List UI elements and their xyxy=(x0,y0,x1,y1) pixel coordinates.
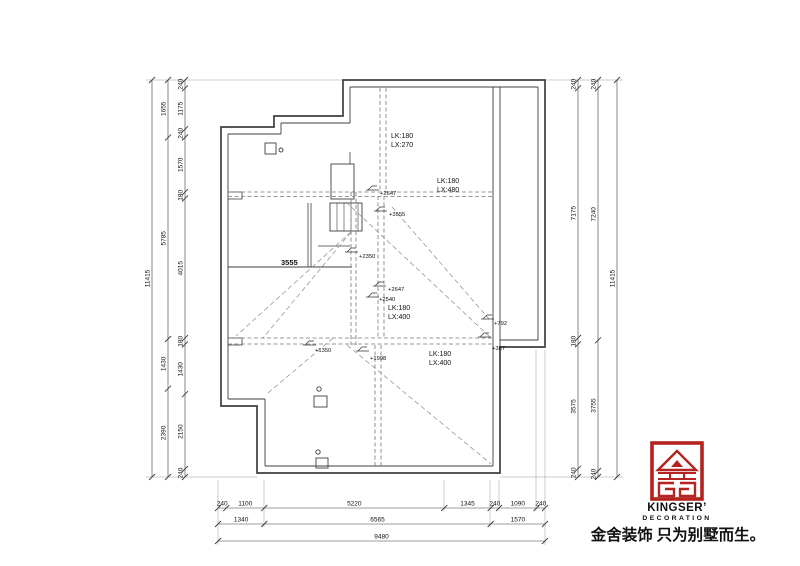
dim-label: 7175 xyxy=(571,206,578,221)
dim-label: 1340 xyxy=(234,517,249,524)
dim-label: 1430 xyxy=(161,356,168,371)
dim-label: 1655 xyxy=(161,101,168,116)
elevation-value-label: +2647 xyxy=(380,191,396,197)
dim-label: 1175 xyxy=(178,101,185,115)
dim-label: 11415 xyxy=(145,269,152,287)
beam-size-label: LX:480 xyxy=(437,187,459,194)
dim-label: 240 xyxy=(571,467,578,478)
dim-label: 240 xyxy=(571,78,578,89)
floorplan-svg: 金舍装饰水印 xyxy=(0,0,800,566)
elevation-value-label: +1350 xyxy=(315,348,331,354)
dim-label: 4015 xyxy=(178,261,185,276)
beam-size-label: LX:400 xyxy=(429,360,451,367)
dim-label: 240 xyxy=(591,78,598,89)
dim-label: 11415 xyxy=(610,269,617,287)
elevation-value-label: +2647 xyxy=(388,287,404,293)
dim-label: 240 xyxy=(217,501,228,508)
beam-size-label: LK:180 xyxy=(391,133,413,140)
dim-label: 240 xyxy=(178,128,185,139)
elevation-value-label: +792 xyxy=(494,321,507,327)
elevation-value-label: +3555 xyxy=(389,212,405,218)
outer-wall-outline xyxy=(221,80,545,473)
logo-sub-text: DECORATION xyxy=(642,515,711,522)
dim-label: 2150 xyxy=(178,424,185,439)
logo-tagline: 金舍装饰 只为别墅而生。 xyxy=(590,525,765,544)
elevation-value-label: +387 xyxy=(492,346,505,352)
dim-label: 3575 xyxy=(571,399,578,414)
dim-label: 7240 xyxy=(591,207,598,222)
dim-label: 240 xyxy=(591,468,598,479)
dim-label: 1345 xyxy=(460,501,475,508)
dim-label: 1570 xyxy=(511,517,526,524)
beam-size-label: LK:180 xyxy=(437,178,459,185)
elevation-value-label: +1998 xyxy=(370,356,386,362)
dim-label: 180 xyxy=(178,189,185,200)
dim-label: 180 xyxy=(571,335,578,346)
elevation-value-label: +2540 xyxy=(379,297,395,303)
wall-dimension-label: 3555 xyxy=(281,258,298,267)
kingser-house-icon xyxy=(652,443,702,499)
beam-size-label: LX:400 xyxy=(388,314,410,321)
dim-label: 5785 xyxy=(161,231,168,246)
dim-label: 240 xyxy=(535,501,546,508)
dim-label: 9480 xyxy=(374,534,389,541)
beam-size-label: LX:270 xyxy=(391,142,413,149)
dim-label: 1430 xyxy=(178,362,185,377)
dim-label: 6565 xyxy=(370,517,385,524)
floorplan-canvas: 金舍装饰水印 xyxy=(0,0,800,566)
dim-label: 240 xyxy=(178,467,185,478)
dim-label: 1570 xyxy=(178,157,185,172)
dim-label: 240 xyxy=(178,78,185,89)
dim-label: 1090 xyxy=(511,501,526,508)
dim-label: 240 xyxy=(489,501,500,508)
dim-label: 180 xyxy=(178,335,185,346)
elevation-value-label: +2350 xyxy=(359,254,375,260)
dim-label: 1100 xyxy=(238,501,252,508)
kingser-logo: KINGSER’ DECORATION 金舍装饰 只为别墅而生。 xyxy=(590,443,765,544)
beam-size-label: LK:180 xyxy=(429,351,451,358)
logo-brand-text: KINGSER’ xyxy=(647,502,707,514)
dim-label: 3755 xyxy=(591,398,598,413)
dim-label: 5220 xyxy=(347,501,362,508)
beam-size-label: LK:180 xyxy=(388,305,410,312)
dim-label: 2390 xyxy=(161,425,168,440)
wall-pier xyxy=(228,192,242,199)
